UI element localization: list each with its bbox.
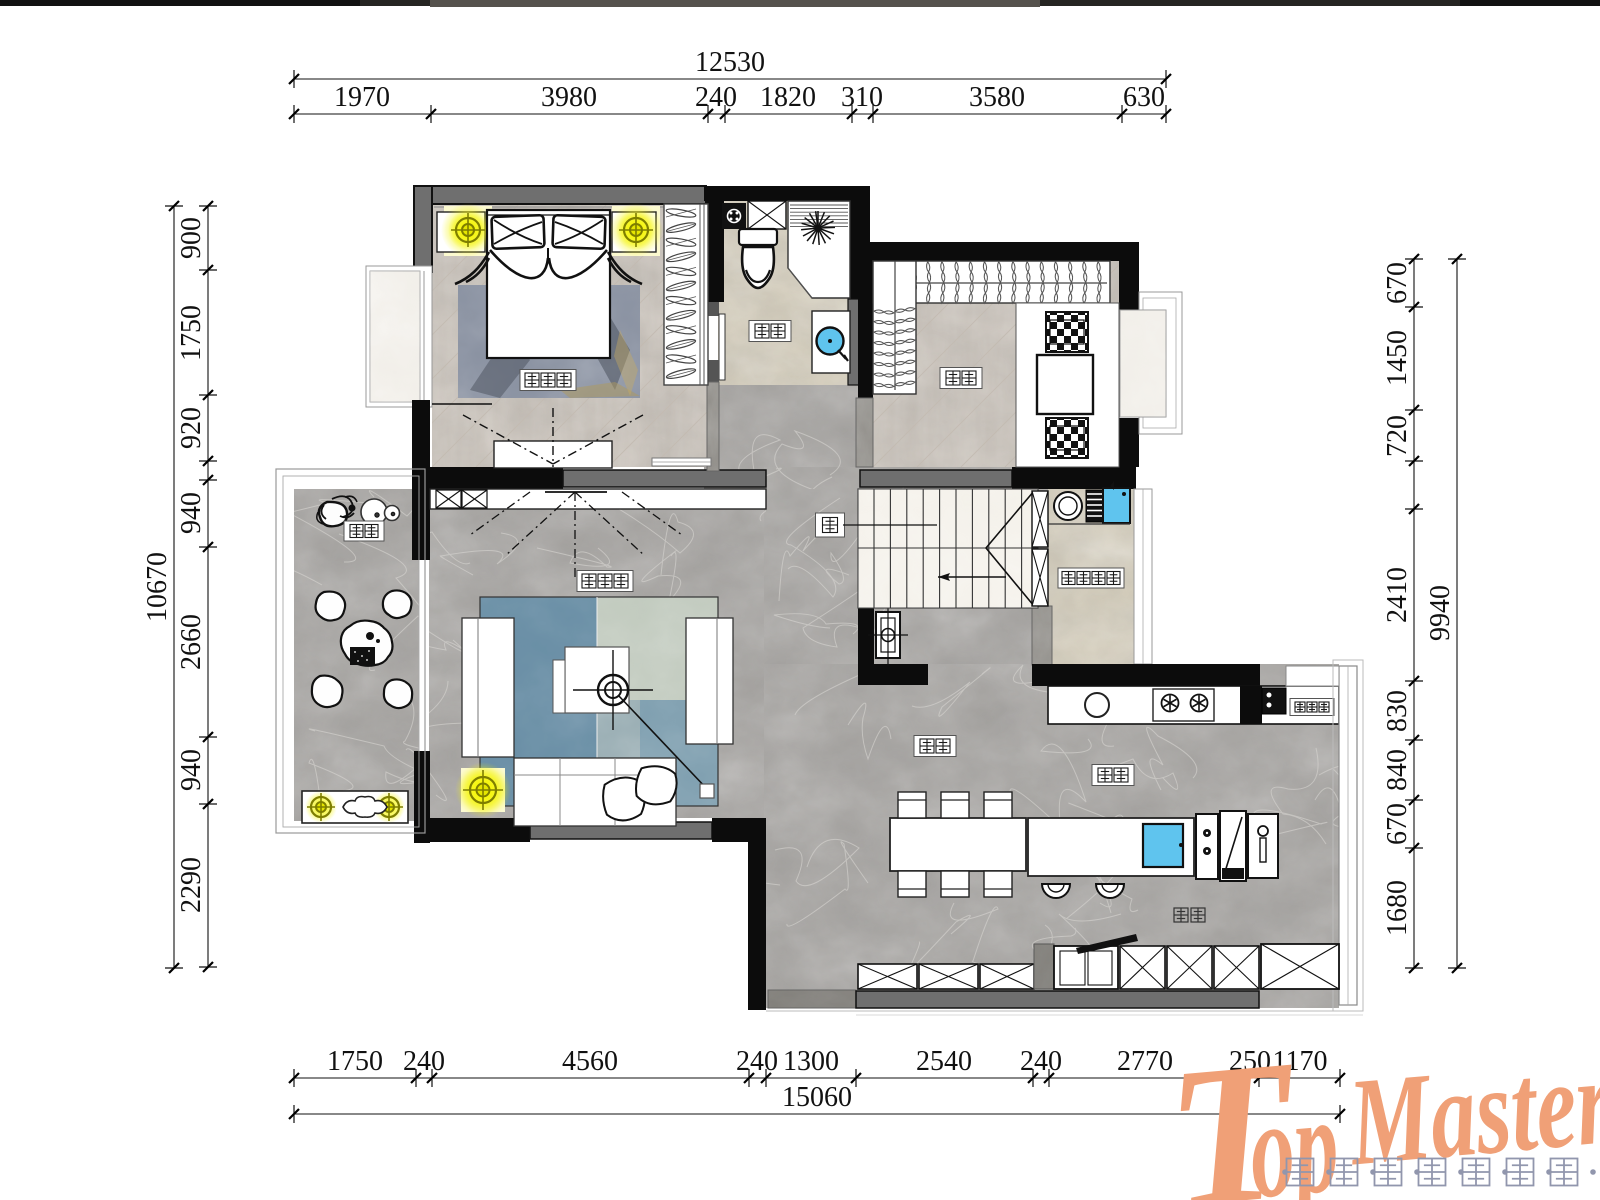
svg-text:1450: 1450 xyxy=(1382,330,1413,386)
svg-text:1820: 1820 xyxy=(760,82,816,113)
svg-text:2290: 2290 xyxy=(176,857,207,913)
svg-text:240: 240 xyxy=(403,1046,445,1077)
svg-text:240: 240 xyxy=(695,82,737,113)
svg-text:920: 920 xyxy=(176,407,207,449)
svg-text:240: 240 xyxy=(1020,1046,1062,1077)
svg-text:670: 670 xyxy=(1382,262,1413,304)
svg-text:310: 310 xyxy=(841,82,883,113)
svg-text:1970: 1970 xyxy=(334,82,390,113)
svg-text:3980: 3980 xyxy=(541,82,597,113)
svg-text:2660: 2660 xyxy=(176,614,207,670)
svg-text:900: 900 xyxy=(176,217,207,259)
svg-text:12530: 12530 xyxy=(695,47,765,78)
svg-text:1750: 1750 xyxy=(176,305,207,361)
svg-text:9940: 9940 xyxy=(1425,585,1456,641)
svg-text:1300: 1300 xyxy=(783,1046,839,1077)
svg-text:Master: Master xyxy=(1342,1032,1600,1193)
svg-text:830: 830 xyxy=(1382,690,1413,732)
svg-text:670: 670 xyxy=(1382,803,1413,845)
svg-text:2410: 2410 xyxy=(1382,567,1413,623)
svg-text:1680: 1680 xyxy=(1382,880,1413,936)
svg-text:10670: 10670 xyxy=(142,552,173,622)
svg-text:15060: 15060 xyxy=(782,1082,852,1113)
svg-text:840: 840 xyxy=(1382,749,1413,791)
svg-text:720: 720 xyxy=(1382,415,1413,457)
svg-text:4560: 4560 xyxy=(562,1046,618,1077)
svg-text:3580: 3580 xyxy=(969,82,1025,113)
svg-text:630: 630 xyxy=(1123,82,1165,113)
svg-text:940: 940 xyxy=(176,492,207,534)
svg-text:940: 940 xyxy=(176,749,207,791)
svg-text:1750: 1750 xyxy=(327,1046,383,1077)
svg-text:op: op xyxy=(1243,1066,1344,1200)
svg-text:240: 240 xyxy=(736,1046,778,1077)
svg-text:2540: 2540 xyxy=(916,1046,972,1077)
